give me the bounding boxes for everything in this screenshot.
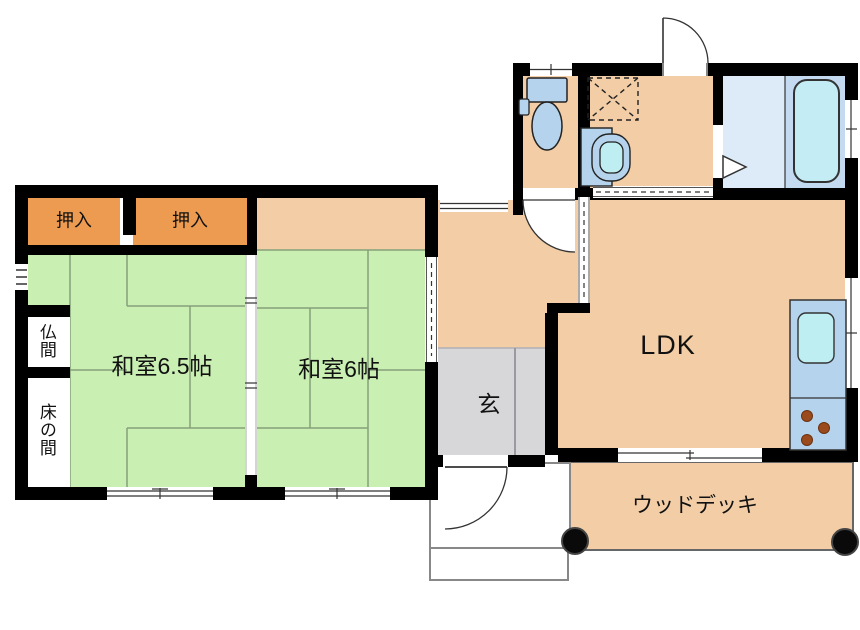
genkan-label: 玄 [478, 392, 501, 416]
entrance-porch [430, 463, 570, 580]
fusuma-sliding-door-icon [245, 255, 257, 475]
deck-post-icon [832, 529, 858, 555]
engawa-strip [257, 195, 425, 250]
kitchen-sink-icon [798, 313, 834, 363]
window-icon [440, 200, 508, 212]
window-icon [845, 100, 858, 158]
sliding-door-icon [578, 197, 590, 303]
sliding-window-icon [618, 448, 762, 462]
window-icon [285, 487, 390, 500]
floor-plan-drawing [0, 0, 860, 630]
kitchen-counter-icon [790, 300, 846, 450]
closet-left-label: 押入 [56, 212, 92, 231]
vent-window-icon [15, 264, 28, 290]
tokonoma-label: 床の間 [37, 403, 55, 457]
deck-post-icon [562, 528, 588, 554]
floor-plan: 押入 押入 仏間 床の間 和室6.5帖 和室6帖 玄 LDK ウッドデッキ [0, 0, 860, 630]
back-door-swing-icon [662, 18, 708, 76]
bathtub-icon [794, 80, 839, 182]
sliding-door-icon [593, 186, 713, 198]
sliding-door-icon [425, 257, 438, 362]
washitsu-6-5-label: 和室6.5帖 [112, 354, 213, 378]
wood-deck-label: ウッドデッキ [632, 495, 758, 517]
window-icon [107, 487, 213, 500]
window-icon [530, 63, 572, 76]
butsuma-label: 仏間 [37, 323, 55, 359]
vanity-sink-icon [581, 128, 630, 186]
closet-right-label: 押入 [172, 212, 208, 231]
ldk-label: LDK [640, 331, 696, 359]
washitsu-6-label: 和室6帖 [298, 357, 380, 381]
window-icon [845, 278, 858, 388]
